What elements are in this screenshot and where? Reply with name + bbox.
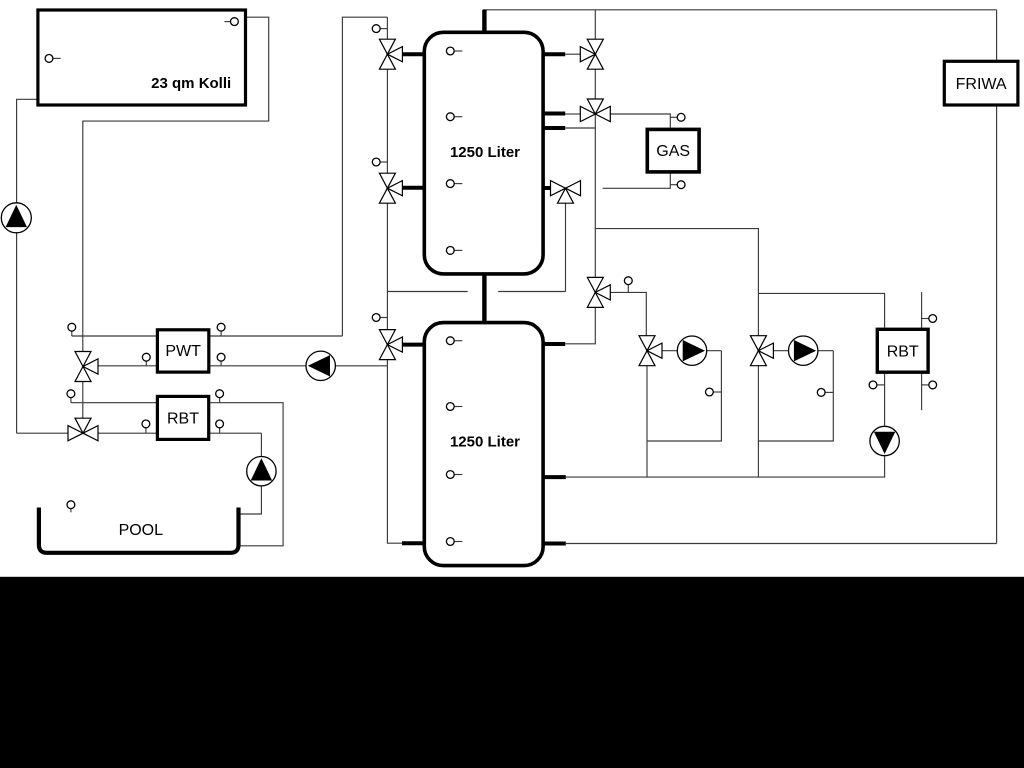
svg-text:1250 Liter: 1250 Liter — [450, 434, 520, 451]
svg-text:PWT: PWT — [165, 343, 201, 360]
svg-text:23 qm Kolli: 23 qm Kolli — [151, 75, 231, 92]
svg-text:RBT: RBT — [887, 344, 919, 361]
svg-text:GAS: GAS — [656, 143, 690, 160]
svg-text:1250 Liter: 1250 Liter — [450, 144, 520, 161]
svg-text:RBT: RBT — [167, 411, 199, 428]
svg-text:POOL: POOL — [119, 522, 164, 539]
svg-text:FRIWA: FRIWA — [956, 76, 1007, 93]
